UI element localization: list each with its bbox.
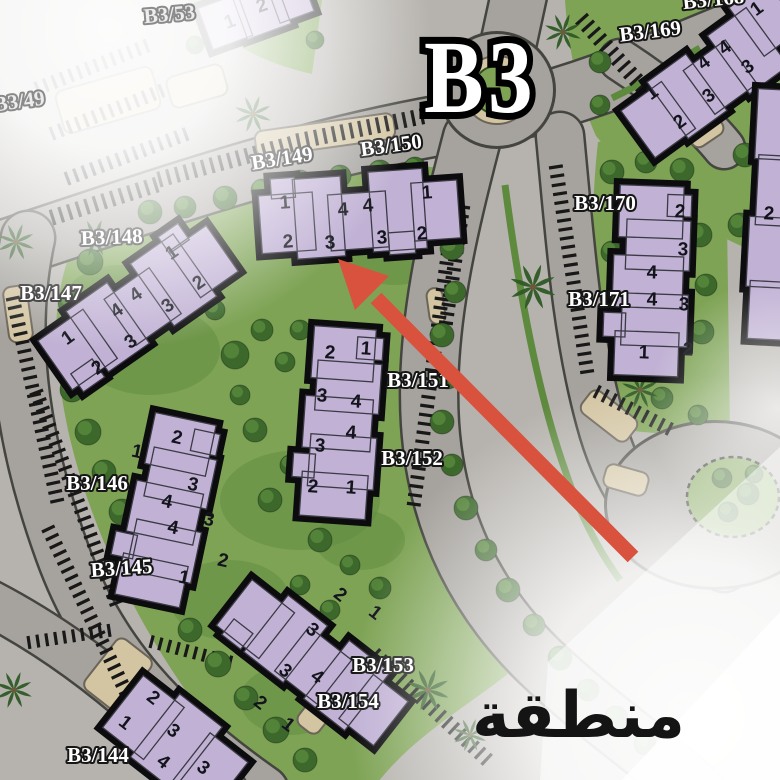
arabic-caption: منطقة (440, 676, 685, 756)
site-plan-map: 1441233212443132213443211234432121334212… (0, 0, 780, 780)
zone-title-text: B3 (424, 20, 537, 135)
street-label: B3/53 (143, 0, 196, 28)
zone-title: B3 B3 (424, 26, 537, 130)
site-plan-screenshot: 1441233212443132213443211234432121334212… (0, 0, 780, 780)
